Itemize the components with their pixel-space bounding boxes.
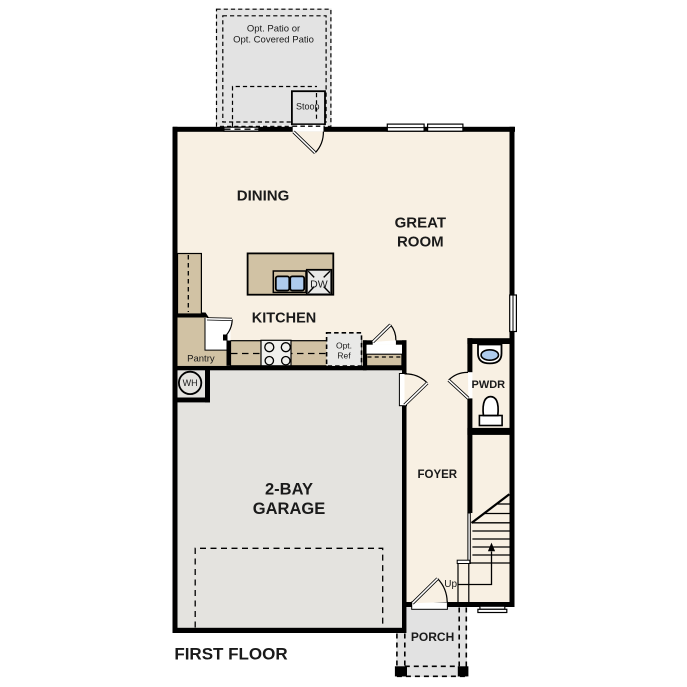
svg-text:WH: WH	[183, 378, 198, 388]
svg-text:Pantry: Pantry	[187, 354, 215, 365]
svg-text:2-BAY: 2-BAY	[265, 481, 313, 499]
svg-text:Ref: Ref	[337, 351, 351, 361]
svg-text:FIRST FLOOR: FIRST FLOOR	[174, 644, 287, 663]
svg-text:GARAGE: GARAGE	[253, 500, 325, 518]
svg-text:FOYER: FOYER	[417, 469, 457, 481]
svg-text:KITCHEN: KITCHEN	[252, 311, 316, 327]
svg-text:DINING: DINING	[237, 188, 290, 205]
svg-text:Opt. Patio or: Opt. Patio or	[247, 24, 300, 35]
svg-text:Up: Up	[444, 579, 457, 590]
svg-text:Opt. Covered Patio: Opt. Covered Patio	[233, 35, 314, 46]
svg-text:DW: DW	[310, 279, 328, 291]
svg-text:GREAT: GREAT	[395, 215, 446, 232]
svg-text:Opt.: Opt.	[336, 341, 352, 351]
svg-text:PWDR: PWDR	[471, 379, 505, 391]
svg-text:ROOM: ROOM	[397, 234, 444, 251]
svg-text:Stoop: Stoop	[296, 102, 320, 112]
svg-text:PORCH: PORCH	[411, 630, 454, 644]
